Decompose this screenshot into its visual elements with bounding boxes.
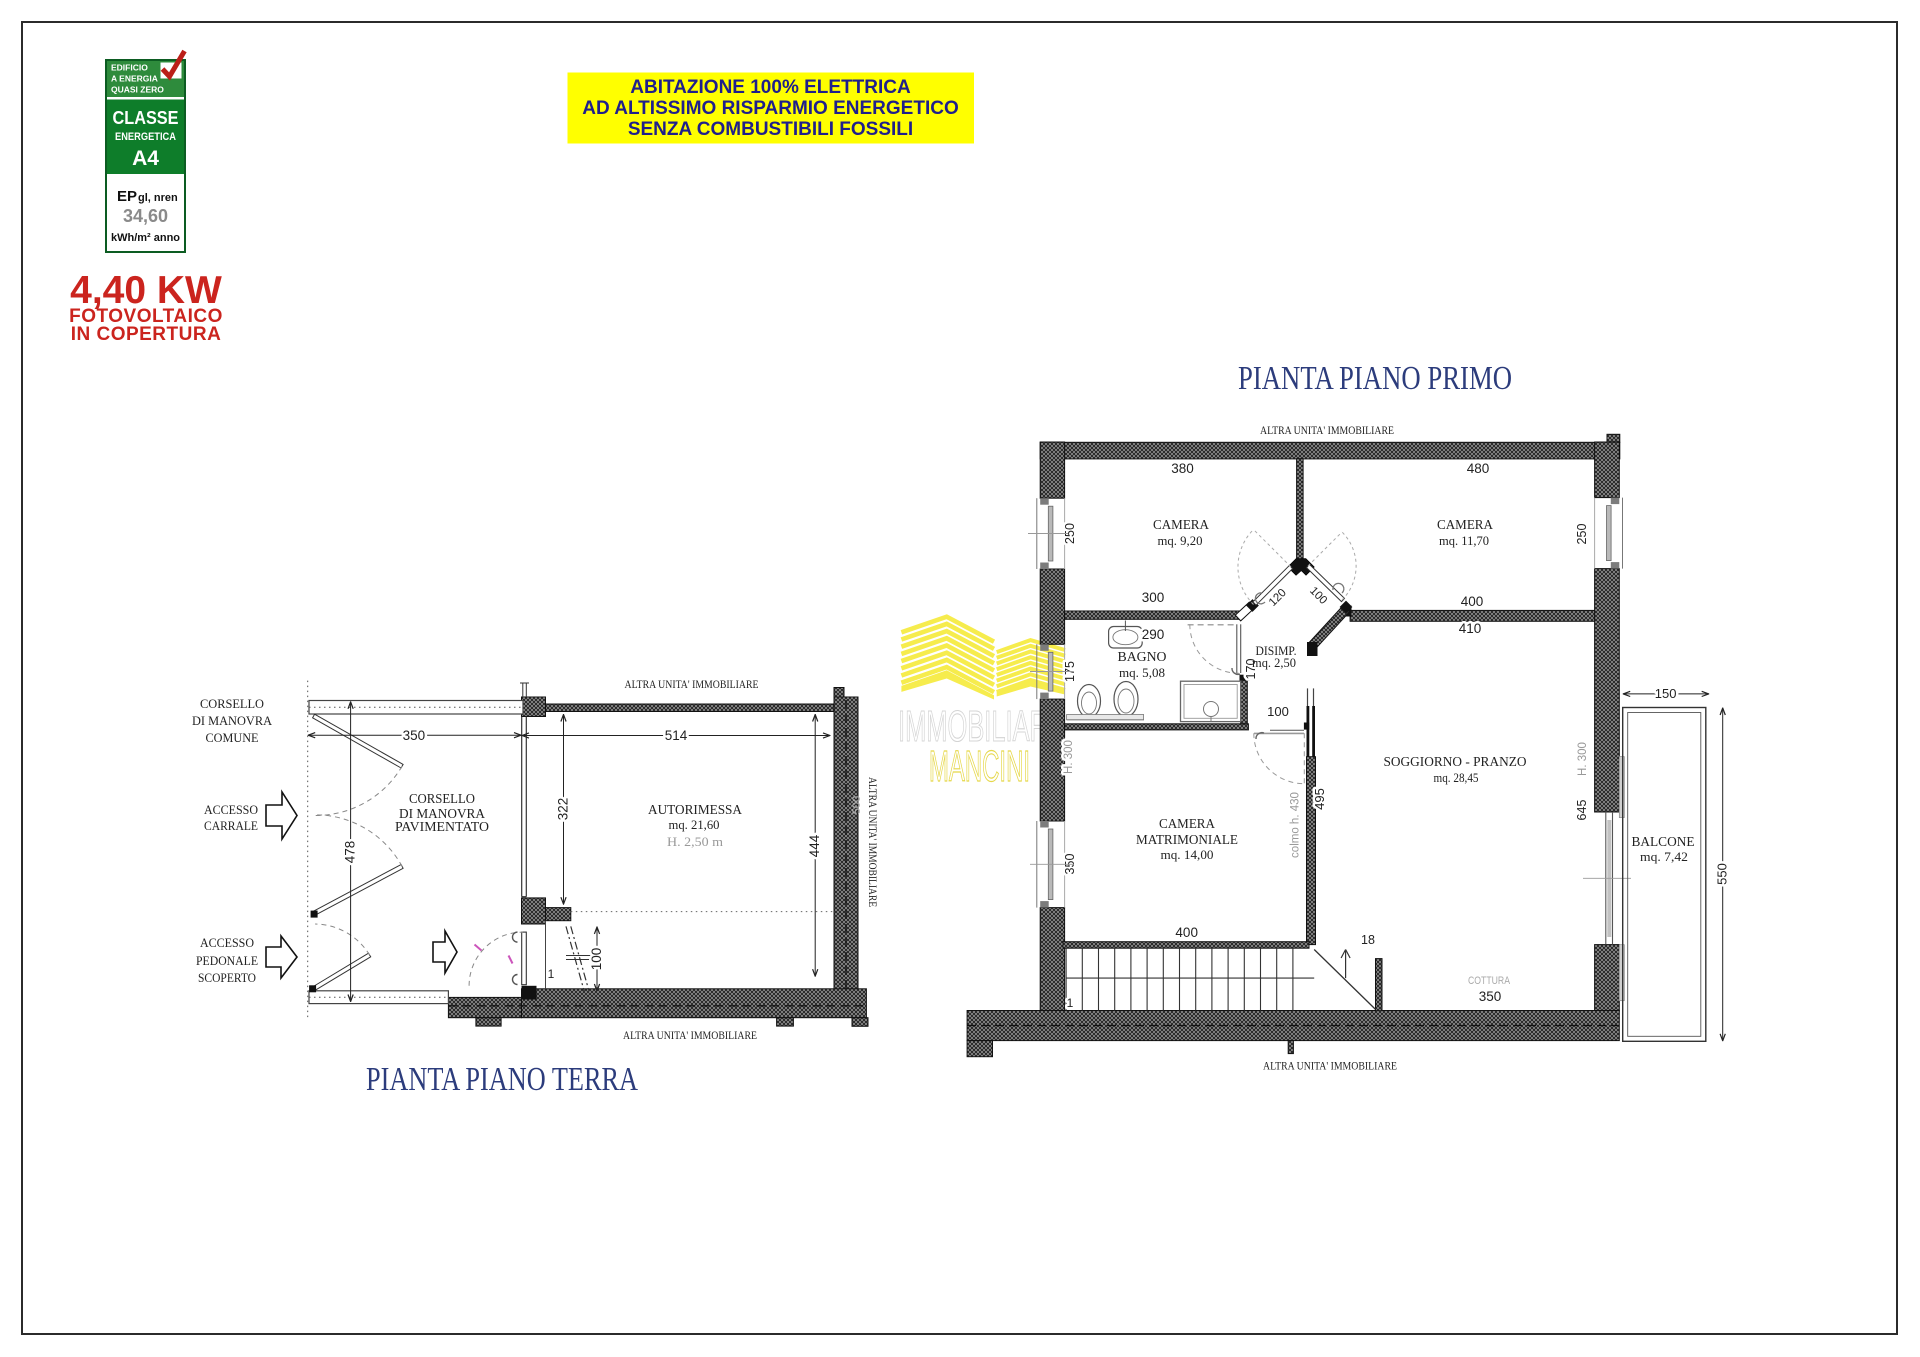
svg-text:CAMERA: CAMERA — [1159, 816, 1215, 831]
svg-text:MANCINI: MANCINI — [929, 742, 1030, 791]
svg-text:CARRALE: CARRALE — [204, 818, 258, 833]
svg-text:DI MANOVRA: DI MANOVRA — [192, 713, 273, 728]
svg-text:ACCESSO: ACCESSO — [204, 802, 258, 817]
svg-text:PIANTA PIANO TERRA: PIANTA PIANO TERRA — [366, 1061, 638, 1098]
svg-text:300: 300 — [1142, 590, 1165, 605]
svg-text:AD ALTISSIMO RISPARMIO ENERGET: AD ALTISSIMO RISPARMIO ENERGETICO — [582, 98, 959, 119]
svg-text:380: 380 — [1171, 461, 1194, 476]
svg-text:CORSELLO: CORSELLO — [409, 791, 475, 806]
svg-text:COMUNE: COMUNE — [206, 730, 259, 745]
svg-text:PEDONALE: PEDONALE — [196, 953, 258, 968]
svg-text:colmo h. 430: colmo h. 430 — [1290, 792, 1302, 858]
svg-text:1: 1 — [1067, 996, 1074, 1010]
svg-text:480: 480 — [1467, 461, 1490, 476]
svg-text:ALTRA UNITA' IMMOBILIARE: ALTRA UNITA' IMMOBILIARE — [1263, 1061, 1397, 1073]
svg-text:100: 100 — [589, 948, 604, 971]
svg-text:ACCESSO: ACCESSO — [200, 935, 254, 950]
svg-text:350: 350 — [403, 728, 426, 743]
svg-text:BALCONE: BALCONE — [1632, 834, 1695, 849]
svg-text:QUASI ZERO: QUASI ZERO — [111, 85, 164, 95]
svg-text:500: 500 — [851, 796, 863, 814]
svg-text:ALTRA UNITA' IMMOBILIARE: ALTRA UNITA' IMMOBILIARE — [1260, 425, 1394, 437]
svg-text:SOGGIORNO - PRANZO: SOGGIORNO - PRANZO — [1384, 754, 1527, 769]
svg-text:IN COPERTURA: IN COPERTURA — [71, 324, 222, 345]
svg-text:18: 18 — [1361, 933, 1375, 947]
svg-text:mq. 21,60: mq. 21,60 — [669, 818, 720, 832]
svg-text:34,60: 34,60 — [123, 206, 168, 226]
svg-text:CAMERA: CAMERA — [1437, 517, 1493, 532]
svg-text:mq. 14,00: mq. 14,00 — [1161, 848, 1214, 862]
svg-text:ALTRA UNITA' IMMOBILIARE: ALTRA UNITA' IMMOBILIARE — [625, 679, 759, 691]
svg-text:CLASSE: CLASSE — [113, 108, 179, 128]
svg-text:mq. 11,70: mq. 11,70 — [1439, 534, 1489, 548]
svg-text:COTTURA: COTTURA — [1468, 975, 1511, 987]
svg-text:EP: EP — [117, 188, 137, 205]
svg-text:ABITAZIONE 100% ELETTRICA: ABITAZIONE 100% ELETTRICA — [630, 77, 911, 98]
svg-text:514: 514 — [665, 728, 688, 743]
svg-text:BAGNO: BAGNO — [1118, 649, 1167, 664]
svg-text:478: 478 — [343, 841, 358, 864]
svg-text:550: 550 — [1715, 863, 1730, 885]
svg-text:410: 410 — [1459, 621, 1482, 636]
svg-text:mq. 9,20: mq. 9,20 — [1158, 534, 1203, 548]
svg-text:mq. 2,50: mq. 2,50 — [1252, 656, 1296, 670]
svg-text:1: 1 — [548, 967, 555, 981]
svg-text:495: 495 — [1312, 788, 1327, 810]
svg-text:kWh/m² anno: kWh/m² anno — [111, 232, 180, 244]
svg-text:EDIFICIO: EDIFICIO — [111, 63, 148, 73]
svg-text:CORSELLO: CORSELLO — [200, 696, 264, 711]
svg-text:CAMERA: CAMERA — [1153, 517, 1209, 532]
svg-text:mq. 7,42: mq. 7,42 — [1640, 850, 1688, 864]
svg-text:400: 400 — [1175, 925, 1198, 940]
svg-text:SCOPERTO: SCOPERTO — [198, 970, 256, 985]
svg-text:ALTRA UNITA' IMMOBILIARE: ALTRA UNITA' IMMOBILIARE — [623, 1030, 757, 1042]
svg-text:322: 322 — [556, 798, 571, 821]
svg-text:SENZA COMBUSTIBILI FOSSILI: SENZA COMBUSTIBILI FOSSILI — [628, 119, 913, 140]
svg-text:H. 300: H. 300 — [1063, 740, 1075, 774]
svg-text:PAVIMENTATO: PAVIMENTATO — [395, 819, 489, 834]
svg-text:ENERGETICA: ENERGETICA — [115, 131, 176, 143]
svg-text:A4: A4 — [132, 147, 159, 170]
svg-text:PIANTA PIANO PRIMO: PIANTA PIANO PRIMO — [1238, 360, 1512, 397]
svg-text:100: 100 — [1267, 704, 1289, 719]
svg-text:350: 350 — [1479, 989, 1502, 1004]
svg-text:AUTORIMESSA: AUTORIMESSA — [648, 802, 742, 817]
svg-text:MATRIMONIALE: MATRIMONIALE — [1136, 832, 1238, 847]
svg-text:A ENERGIA: A ENERGIA — [111, 74, 158, 84]
svg-text:150: 150 — [1655, 686, 1677, 701]
svg-text:290: 290 — [1142, 627, 1165, 642]
svg-text:645: 645 — [1575, 800, 1589, 821]
svg-text:H. 300: H. 300 — [1577, 742, 1589, 776]
svg-text:H. 2,50 m: H. 2,50 m — [667, 835, 723, 849]
svg-text:444: 444 — [807, 834, 822, 857]
svg-text:mq. 5,08: mq. 5,08 — [1119, 666, 1165, 680]
svg-text:ALTRA UNITA' IMMOBILIARE: ALTRA UNITA' IMMOBILIARE — [866, 777, 878, 907]
svg-text:250: 250 — [1575, 524, 1589, 545]
svg-text:gl, nren: gl, nren — [138, 192, 178, 204]
svg-text:400: 400 — [1461, 594, 1484, 609]
svg-text:mq. 28,45: mq. 28,45 — [1434, 771, 1479, 785]
